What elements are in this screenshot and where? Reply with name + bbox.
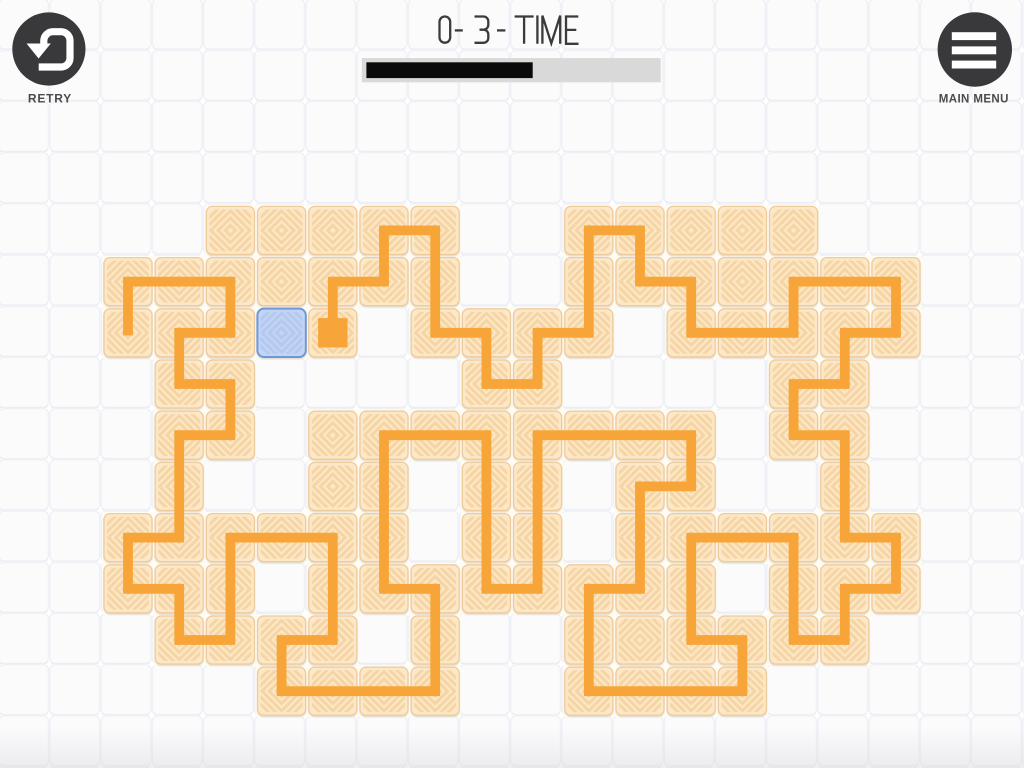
svg-text:RETRY: RETRY bbox=[28, 92, 72, 106]
svg-text:MAIN MENU: MAIN MENU bbox=[939, 93, 1009, 105]
